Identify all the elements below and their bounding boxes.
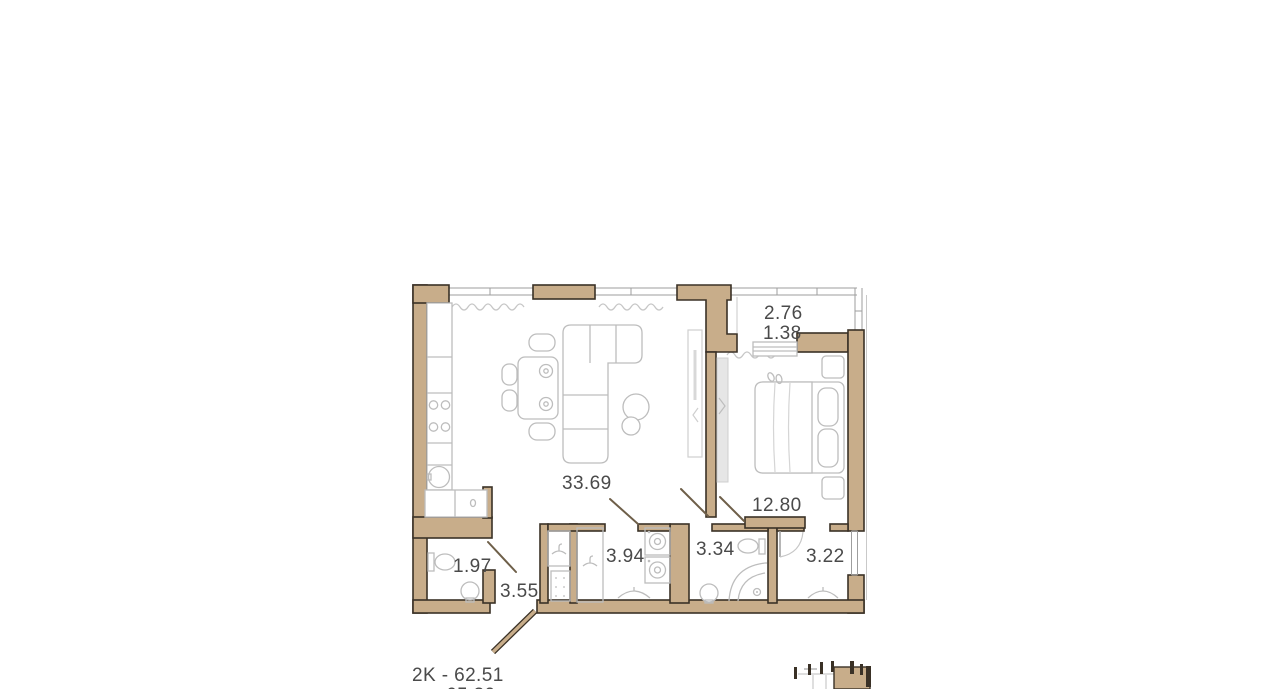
- wall-left: [413, 285, 427, 613]
- wall-bathroom-dressing: [768, 524, 777, 603]
- floor-plan-svg: 2.76 1.38 33.69 12.80 3.94 3.34 3.22 1.9…: [0, 0, 1280, 689]
- apartment-type-label: 2K - 62.51: [412, 665, 504, 686]
- apartment-secondary-label: 65.39: [446, 685, 496, 689]
- dressing-window: [852, 531, 858, 575]
- wall-closet-divider: [570, 524, 577, 603]
- kitchen-counter: [427, 303, 452, 490]
- toilet-tank: [759, 539, 765, 554]
- dining-table: [518, 357, 558, 419]
- wall-bedroom-bottom: [745, 517, 805, 528]
- bedroom-furniture: [717, 356, 844, 499]
- corridor-door-leaf: [610, 499, 638, 524]
- washer: [645, 528, 670, 555]
- label-corridor: 3.94: [606, 546, 645, 567]
- nightstand: [822, 356, 844, 378]
- wall-bottom-left: [413, 600, 490, 613]
- label-hall: 3.55: [500, 581, 539, 602]
- toilet: [738, 539, 758, 553]
- corner-shower: [729, 563, 767, 601]
- label-balcony-reduced: 1.38: [763, 323, 802, 344]
- balcony-bench: [753, 342, 797, 356]
- label-balcony-full: 2.76: [764, 303, 803, 324]
- blanket: [755, 382, 812, 473]
- wall-pillar-tee: [677, 285, 737, 352]
- dressing-door-swing: [780, 532, 803, 557]
- closet: [577, 528, 603, 602]
- toilet: [435, 554, 455, 570]
- chair: [529, 423, 555, 440]
- dryer: [645, 557, 670, 583]
- wall-top-dressing-b: [830, 524, 848, 531]
- wall-corner-top-left: [413, 285, 449, 303]
- coat-hook: [618, 587, 650, 598]
- label-dressing: 3.22: [806, 546, 845, 567]
- floorplan-page: 2.76 1.38 33.69 12.80 3.94 3.34 3.22 1.9…: [0, 0, 1280, 689]
- wash-basin: [461, 582, 479, 600]
- slipper: [767, 372, 776, 383]
- coffee-table: [623, 394, 649, 420]
- chair: [502, 364, 517, 385]
- balcony-furniture: [753, 342, 797, 356]
- bathroom-door-leaf: [681, 489, 708, 516]
- pillow: [818, 429, 838, 467]
- kitchen-fixtures: [425, 303, 487, 517]
- wall-pillar-top: [533, 285, 595, 299]
- sliding-wardrobe: [717, 358, 728, 482]
- kitchen-counter-bottom: [425, 490, 487, 517]
- bedroom-door-leaf: [720, 497, 744, 521]
- label-bedroom: 12.80: [752, 495, 802, 516]
- nightstand: [822, 477, 844, 499]
- wall-hall-right: [540, 524, 548, 603]
- wall-kitchen-wc: [413, 517, 492, 538]
- caption: 2K - 62.51 65.39: [412, 665, 504, 689]
- label-wc: 1.97: [453, 556, 492, 577]
- toilet-tank: [428, 553, 434, 571]
- corner-sofa: [563, 325, 642, 463]
- wash-basin: [700, 584, 718, 602]
- coffee-table: [622, 417, 640, 435]
- chair: [529, 334, 555, 351]
- wall-partition-bedroom: [706, 352, 716, 517]
- label-living-kitchen: 33.69: [562, 473, 612, 494]
- wc-door-leaf: [488, 542, 516, 572]
- building-locator-minimap: [794, 661, 871, 689]
- living-room-furniture: [563, 325, 702, 463]
- wall-bedroom-top: [797, 333, 848, 352]
- chair: [502, 390, 517, 411]
- pillow: [818, 388, 838, 426]
- wall-right-upper: [848, 330, 864, 531]
- dressing-fixtures: [808, 587, 838, 598]
- label-bathroom: 3.34: [696, 539, 735, 560]
- dining-set: [502, 334, 558, 440]
- wall-corridor-bathroom: [670, 524, 689, 603]
- coat-hook: [808, 587, 838, 598]
- shoe-rack: [551, 571, 570, 601]
